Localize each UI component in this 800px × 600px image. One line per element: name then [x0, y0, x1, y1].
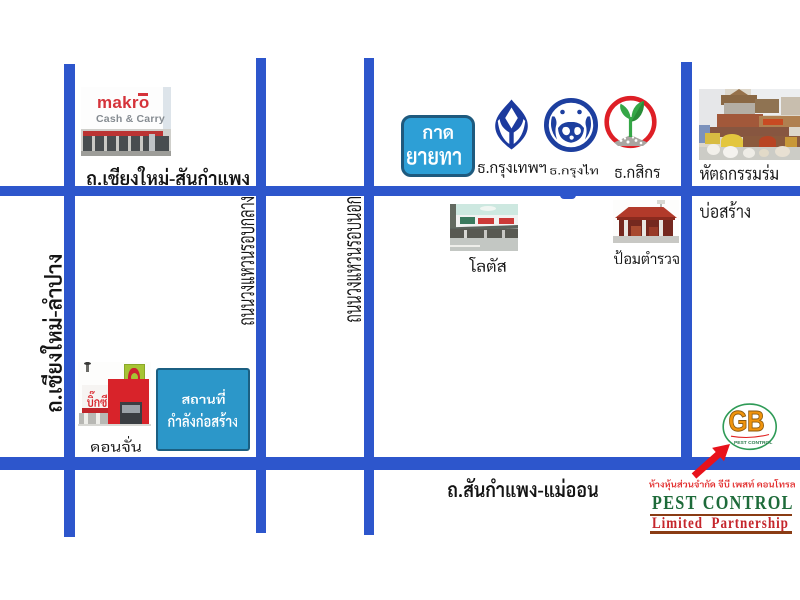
svg-text:GB: GB	[729, 405, 765, 437]
svg-text:PEST CONTROL: PEST CONTROL	[734, 440, 772, 446]
